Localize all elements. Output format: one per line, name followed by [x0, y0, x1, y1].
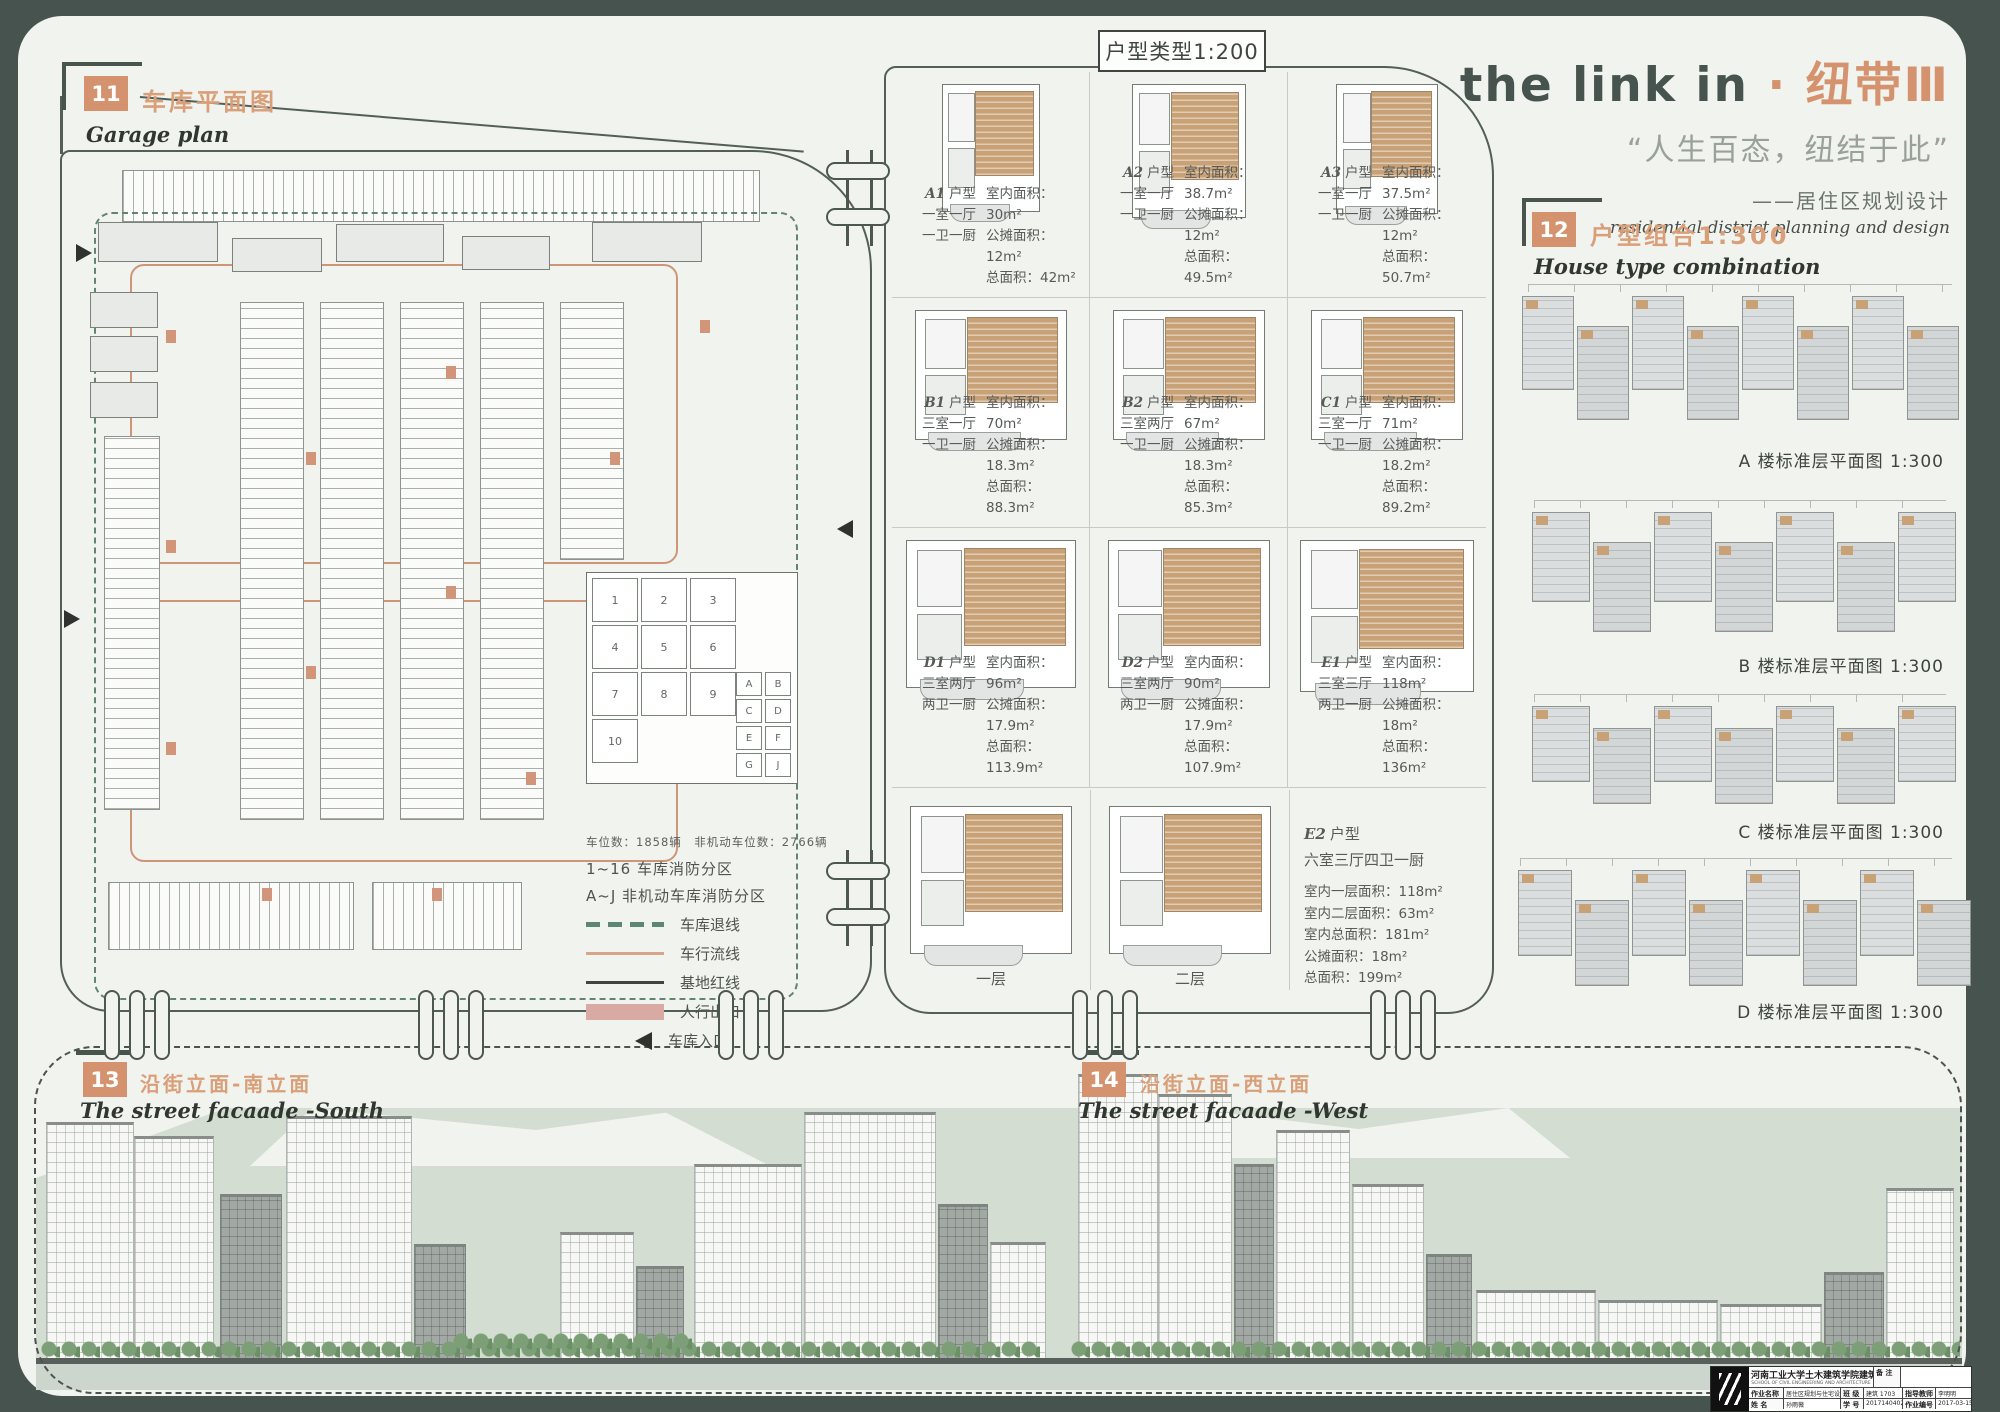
- unit-rooms: 三室一厅: [1298, 414, 1372, 435]
- field-value: 201714040218: [1864, 1399, 1903, 1409]
- unit-name: A2户型: [1100, 163, 1174, 184]
- field-value: 建筑 1703: [1864, 1388, 1903, 1398]
- unit-interior-area: 室内面积：30m²: [986, 184, 1083, 226]
- stair-core: [166, 742, 176, 755]
- unit-name: A1户型: [902, 184, 976, 205]
- unit-rooms: 三室两厅: [902, 674, 976, 695]
- e2-row: 一层 二层 E2户型 六室三厅四卫一厨 室内一层面积：118m² 室内二层面积：…: [892, 790, 1488, 990]
- unit-bath: 一卫一厨: [902, 435, 976, 456]
- e2-floor2-cell: 二层: [1091, 790, 1290, 990]
- stair-core: [306, 452, 316, 465]
- unit-rooms: 三室一厅: [902, 414, 976, 435]
- garage-entrance-arrow: [828, 520, 853, 538]
- e2-floor1-cell: 一层: [892, 790, 1091, 990]
- parking-rows: [372, 882, 522, 950]
- unit-rooms: 三室三厅: [1298, 674, 1372, 695]
- building-footprint: [90, 336, 158, 372]
- combination-subtitle: House type combination: [1534, 254, 1820, 279]
- unit-total-area: 总面积：49.5m²: [1184, 247, 1281, 289]
- unit-bath: 两卫一厨: [1100, 695, 1174, 716]
- panel-link-connector: [826, 150, 892, 246]
- unit-cell-b2: B2户型三室两厅一卫一厨 室内面积：67m²公摊面积：18.3m²总面积：85.…: [1090, 298, 1288, 528]
- parking-stats: 车位数：1858辆 非机动车位数：2766辆: [586, 834, 836, 850]
- stair-core: [166, 540, 176, 553]
- title-block: 河南工业大学土木建筑学院建筑系 SCHOOL OF CIVIL ENGINEER…: [1710, 1366, 1972, 1412]
- field-value: 居住区规划与住宅设计: [1784, 1388, 1841, 1398]
- panel-link-connector: [1072, 990, 1142, 1062]
- fire-zone-number: 3: [690, 578, 736, 622]
- building-a-caption: A 楼标准层平面图 1:300: [1739, 447, 1944, 472]
- stair-core: [262, 888, 272, 901]
- facade-south-title: 沿街立面-南立面: [140, 1068, 312, 1097]
- poster-title-line: the link in · 纽带Ⅲ: [1190, 46, 1950, 115]
- building-b-caption: B 楼标准层平面图 1:300: [1739, 652, 1944, 677]
- unit-interior-area: 室内面积：118m²: [1382, 653, 1480, 695]
- fire-zone-number: 10: [592, 719, 638, 763]
- unit-shared-area: 公摊面积：18m²: [1382, 695, 1480, 737]
- unit-rooms: 一室一厅: [1100, 184, 1174, 205]
- bike-zone-letter: C: [736, 699, 762, 723]
- garage-legend: 车位数：1858辆 非机动车位数：2766辆 1~16 车库消防分区 A~J 非…: [586, 834, 836, 1059]
- unit-plan-drawing: [910, 806, 1072, 954]
- school-name-en: SCHOOL OF CIVIL ENGINEERING AND ARCHITEC…: [1751, 1381, 1871, 1386]
- dimension-line: [1534, 694, 1946, 702]
- bike-zone-letter: B: [765, 672, 791, 696]
- stair-core: [700, 320, 710, 333]
- e2-floor1-label: 一层: [892, 968, 1090, 989]
- building-c-caption: C 楼标准层平面图 1:300: [1738, 818, 1944, 843]
- unit-total-area: 总面积：88.3m²: [986, 477, 1083, 519]
- section-13-badge: 13: [83, 1062, 127, 1097]
- unit-cell-c1: C1户型三室一厅一卫一厨 室内面积：71m²公摊面积：18.2m²总面积：89.…: [1288, 298, 1486, 528]
- bike-zone-note: A~J 非机动车库消防分区: [586, 885, 836, 906]
- bike-zone-letter: G: [736, 753, 762, 777]
- e2-area-line: 室内总面积：181m²: [1304, 925, 1488, 947]
- remark-label: 备 注: [1874, 1367, 1901, 1387]
- parking-rows: [480, 302, 544, 820]
- title-block-table: 河南工业大学土木建筑学院建筑系 SCHOOL OF CIVIL ENGINEER…: [1749, 1367, 1971, 1411]
- legend-row: 人行出口: [586, 1001, 836, 1022]
- unit-total-area: 总面积：50.7m²: [1382, 247, 1480, 289]
- fire-zone-number: 1: [592, 578, 638, 622]
- unit-cell-a1: A1户型一室一厅一卫一厨 室内面积：30m²公摊面积：12m²总面积：42m²: [892, 72, 1090, 298]
- unit-cell-d1: D1户型三室两厅两卫一厨 室内面积：96m²公摊面积：17.9m²总面积：113…: [892, 528, 1090, 788]
- unit-name: C1户型: [1298, 393, 1372, 414]
- exit-swatch: [586, 1004, 664, 1020]
- unit-plan-drawing: [1109, 806, 1271, 954]
- parking-rows: [400, 302, 464, 820]
- legend-row: 车库入口: [586, 1030, 836, 1051]
- unit-bath: 一卫一厨: [1100, 435, 1174, 456]
- dimension-line: [1520, 858, 1952, 866]
- dimension-line: [1534, 500, 1946, 508]
- school-logo: [1711, 1367, 1749, 1411]
- e2-text-cell: E2户型 六室三厅四卫一厨 室内一层面积：118m² 室内二层面积：63m² 室…: [1290, 790, 1488, 990]
- unit-name: D1户型: [902, 653, 976, 674]
- building-footprint: [90, 292, 158, 328]
- unit-bath: 一卫一厨: [1100, 205, 1174, 226]
- stair-core: [526, 772, 536, 785]
- fire-zone-note: 1~16 车库消防分区: [586, 858, 836, 879]
- remark-value: [1901, 1367, 1971, 1387]
- e2-area-line: 室内一层面积：118m²: [1304, 882, 1488, 904]
- parking-rows: [104, 436, 160, 810]
- unit-shared-area: 公摊面积：18.3m²: [1184, 435, 1281, 477]
- unit-bath: 一卫一厨: [902, 226, 976, 247]
- building-b-plan: [1532, 512, 1956, 632]
- fire-zone-number: 9: [690, 672, 736, 716]
- combination-title: 户型组合1:300: [1590, 216, 1789, 251]
- unit-interior-area: 室内面积：90m²: [1184, 653, 1281, 695]
- unit-rooms: 三室两厅: [1100, 414, 1174, 435]
- field-label: 作业编号: [1903, 1399, 1936, 1409]
- poster-board: 13 沿街立面-南立面 The street facaade -South 14…: [0, 0, 2000, 1412]
- parking-rows: [108, 882, 354, 950]
- stair-core: [446, 366, 456, 379]
- e2-name: E2户型: [1304, 822, 1488, 846]
- bike-zone-letter: F: [765, 726, 791, 750]
- garage-entrance-arrow: [64, 610, 89, 628]
- field-label: 作业名称: [1749, 1388, 1784, 1398]
- fire-zone-number: 5: [641, 625, 687, 669]
- legend-label: 车库退线: [680, 914, 740, 935]
- unit-name: D2户型: [1100, 653, 1174, 674]
- legend-row: 基地红线: [586, 972, 836, 993]
- flow-line-swatch: [586, 952, 664, 955]
- unit-rooms: 三室两厅: [1100, 674, 1174, 695]
- legend-row: 车行流线: [586, 943, 836, 964]
- panel-link-connector: [104, 990, 174, 1062]
- facade-south-subtitle: The street facaade -South: [80, 1098, 384, 1123]
- parking-rows: [320, 302, 384, 820]
- field-value: 孙雨薇: [1784, 1399, 1841, 1409]
- unit-total-area: 总面积：89.2m²: [1382, 477, 1480, 519]
- fire-zone-number: 4: [592, 625, 638, 669]
- unit-shared-area: 公摊面积：17.9m²: [986, 695, 1083, 737]
- dashed-line-swatch: [586, 922, 664, 927]
- unit-cell-b1: B1户型三室一厅一卫一厨 室内面积：70m²公摊面积：18.3m²总面积：88.…: [892, 298, 1090, 528]
- unit-bath: 两卫一厨: [902, 695, 976, 716]
- building-footprint: [98, 222, 218, 262]
- stair-core: [446, 586, 456, 599]
- field-label: 指导教师: [1903, 1388, 1936, 1398]
- building-footprint: [232, 238, 322, 272]
- building-d-caption: D 楼标准层平面图 1:300: [1737, 998, 1944, 1023]
- unit-interior-area: 室内面积：67m²: [1184, 393, 1281, 435]
- panel-link-connector: [718, 990, 788, 1062]
- unit-interior-area: 室内面积：96m²: [986, 653, 1083, 695]
- e2-area-line: 室内二层面积：63m²: [1304, 904, 1488, 926]
- section-11-badge: 11: [84, 76, 128, 111]
- unit-total-area: 总面积：113.9m²: [986, 737, 1083, 779]
- stair-core: [610, 452, 620, 465]
- bike-garage-zone-letters: ABCDEFGJ: [736, 672, 792, 777]
- unit-cell-d2: D2户型三室两厅两卫一厨 室内面积：90m²公摊面积：17.9m²总面积：107…: [1090, 528, 1288, 788]
- unit-name: B2户型: [1100, 393, 1174, 414]
- e2-area-line: 公摊面积：18m²: [1304, 947, 1488, 969]
- garage-fire-zone-numbers: 12345678910: [592, 578, 740, 763]
- bike-zone-letter: D: [765, 699, 791, 723]
- facade-west-title: 沿街立面-西立面: [1140, 1068, 1312, 1097]
- parking-rows: [240, 302, 304, 820]
- bike-zone-letter: A: [736, 672, 762, 696]
- building-footprint: [462, 236, 550, 270]
- fire-zone-number: 8: [641, 672, 687, 716]
- unit-rooms: 一室一厅: [902, 205, 976, 226]
- stair-core: [166, 330, 176, 343]
- school-name: 河南工业大学土木建筑学院建筑系: [1751, 1368, 1871, 1381]
- fire-zone-number: 7: [592, 672, 638, 716]
- garage-title: 车库平面图: [142, 82, 277, 117]
- unit-name: E1户型: [1298, 653, 1372, 674]
- stair-core: [432, 888, 442, 901]
- bike-zone-letter: E: [736, 726, 762, 750]
- field-value: 李明明: [1936, 1388, 1971, 1398]
- red-line-swatch: [586, 981, 664, 984]
- school-name-cell: 河南工业大学土木建筑学院建筑系 SCHOOL OF CIVIL ENGINEER…: [1749, 1367, 1874, 1387]
- unit-bath: 两卫一厨: [1298, 695, 1372, 716]
- building-a-plan: [1522, 296, 1959, 420]
- legend-label: 车行流线: [680, 943, 740, 964]
- building-footprint: [592, 222, 702, 262]
- unit-shared-area: 公摊面积：17.9m²: [1184, 695, 1281, 737]
- dimension-line: [1528, 284, 1952, 292]
- unit-total-area: 总面积：85.3m²: [1184, 477, 1281, 519]
- building-d-plan: [1518, 870, 1971, 986]
- unit-total-area: 总面积：107.9m²: [1184, 737, 1281, 779]
- unit-cell-e1: E1户型三室三厅两卫一厨 室内面积：118m²公摊面积：18m²总面积：136m…: [1288, 528, 1486, 788]
- panel-link-connector: [418, 990, 488, 1062]
- unit-shared-area: 公摊面积：12m²: [986, 226, 1083, 268]
- fire-zone-cluster: 12345678910 ABCDEFGJ: [586, 572, 798, 784]
- parking-rows: [560, 302, 624, 560]
- field-label: 学 号: [1841, 1399, 1864, 1409]
- bike-zone-letter: J: [765, 753, 791, 777]
- garage-entrance-arrow: [76, 244, 101, 262]
- e2-layout: 六室三厅四卫一厨: [1304, 848, 1488, 872]
- section-12-badge: 12: [1532, 212, 1576, 247]
- unit-interior-area: 室内面积：70m²: [986, 393, 1083, 435]
- garage-subtitle: Garage plan: [86, 122, 229, 147]
- field-label: 班 级: [1841, 1388, 1864, 1398]
- unit-shared-area: 公摊面积：18.3m²: [986, 435, 1083, 477]
- section-14-badge: 14: [1082, 1062, 1126, 1097]
- legend-row: 车库退线: [586, 914, 836, 935]
- unit-name: B1户型: [902, 393, 976, 414]
- fire-zone-number: 2: [641, 578, 687, 622]
- unit-total-area: 总面积：42m²: [986, 268, 1083, 289]
- stair-core: [306, 666, 316, 679]
- entrance-arrow-icon: [626, 1032, 652, 1050]
- poster-quote: “人生百态，纽结于此”: [1190, 125, 1950, 169]
- building-footprint: [90, 382, 158, 418]
- fire-zone-number: 6: [690, 625, 736, 669]
- panel-link-connector: [1370, 990, 1440, 1062]
- e2-area-line: 总面积：199m²: [1304, 968, 1488, 990]
- unit-interior-area: 室内面积：71m²: [1382, 393, 1480, 435]
- facade-west-subtitle: The street facaade -West: [1078, 1098, 1368, 1123]
- building-footprint: [336, 224, 444, 262]
- field-value: 2017-03-15: [1936, 1399, 1971, 1409]
- unit-bath: 一卫一厨: [1298, 435, 1372, 456]
- unit-shared-area: 公摊面积：18.2m²: [1382, 435, 1480, 477]
- panel-link-connector: [826, 850, 892, 946]
- field-label: 姓 名: [1749, 1399, 1784, 1409]
- building-c-plan: [1532, 706, 1956, 804]
- e2-floor2-label: 二层: [1091, 968, 1289, 989]
- unit-total-area: 总面积：136m²: [1382, 737, 1480, 779]
